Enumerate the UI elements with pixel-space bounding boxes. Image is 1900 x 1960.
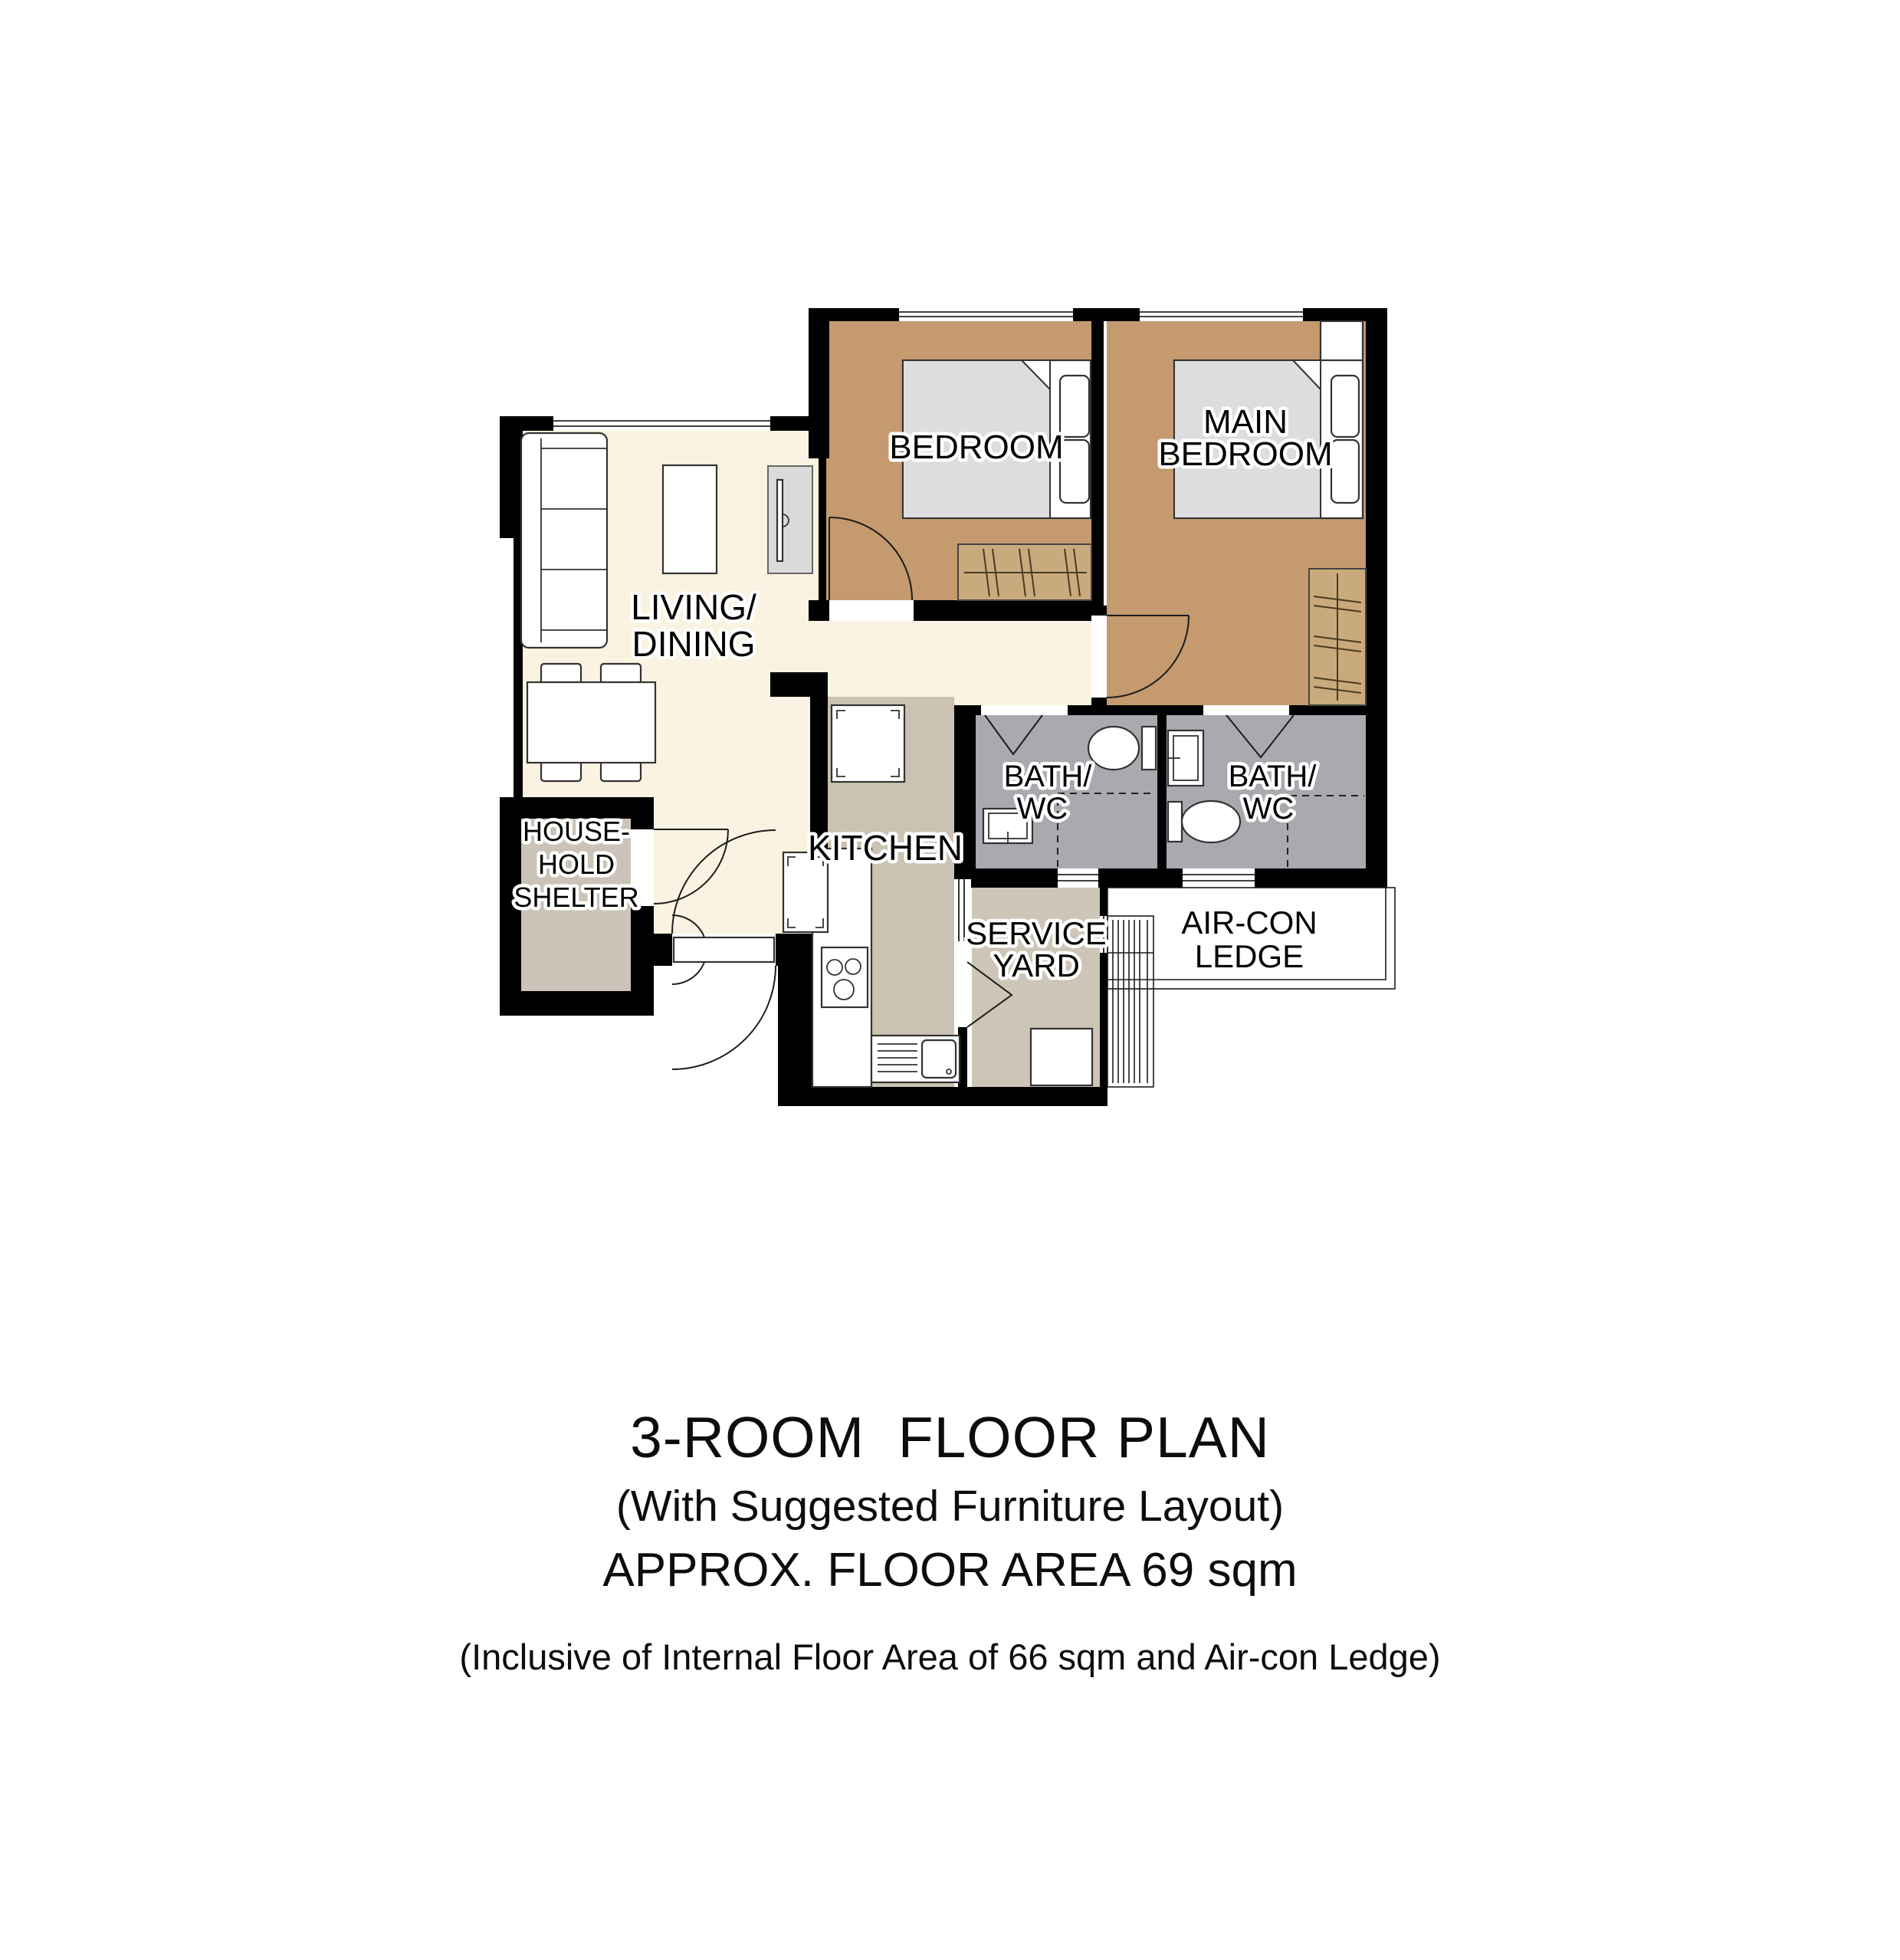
main-bedroom-window: [1140, 308, 1303, 321]
floor-plan-page: LIVING/ DINING BEDROOM MAIN BEDROOM KITC…: [0, 0, 1900, 1960]
bath2-vent-window: [1183, 868, 1255, 888]
washing-machine: [1031, 1029, 1092, 1085]
wash-basin: [1168, 730, 1203, 786]
household-shelter-label: HOLD: [538, 849, 615, 880]
aircon-louvres: [1113, 920, 1140, 1083]
bath2-door-opening: [1203, 705, 1289, 715]
living-window: [553, 416, 770, 431]
main-bedroom-wardrobe: [1309, 569, 1366, 705]
kitchen-label: KITCHEN: [808, 828, 963, 868]
bedroom-window: [899, 308, 1073, 321]
aircon-ledge-label: LEDGE: [1195, 938, 1304, 974]
dining-table: [527, 682, 655, 763]
plan-title: 3-ROOM FLOOR PLAN: [0, 1404, 1900, 1470]
dining-set: [527, 664, 655, 781]
bath1-label: WC: [1017, 792, 1068, 826]
bath2-label: WC: [1243, 792, 1295, 826]
plan-area-note: (Inclusive of Internal Floor Area of 66 …: [0, 1636, 1900, 1678]
toilet: [1168, 801, 1240, 842]
living-dining-label: DINING: [632, 624, 756, 664]
household-shelter-label: SHELTER: [514, 882, 638, 913]
coffee-table: [663, 465, 717, 573]
dining-chair: [601, 664, 641, 684]
dining-chair: [601, 761, 641, 781]
bedside-shelf: [1331, 440, 1359, 503]
bedside-shelf: [1331, 376, 1359, 437]
service-yard-label: SERVICE: [966, 915, 1107, 951]
entrance-door-leaf: [674, 937, 774, 962]
bedroom-door-opening: [829, 600, 914, 621]
bath1-label: BATH/: [1004, 760, 1093, 793]
sofa: [521, 433, 607, 648]
dining-chair: [541, 664, 581, 684]
kitchen-sink: [871, 1036, 960, 1082]
toilet: [1088, 727, 1156, 770]
bedside-shelf: [1060, 376, 1089, 437]
plan-floor-area: APPROX. FLOOR AREA 69 sqm: [0, 1543, 1900, 1597]
household-shelter-label: HOUSE-: [523, 816, 630, 847]
service-yard-label: YARD: [993, 947, 1080, 983]
main-bedroom-door-opening: [1091, 616, 1107, 698]
bath1-door-opening: [981, 705, 1068, 715]
fridge: [832, 705, 904, 782]
bedroom-wardrobe: [958, 544, 1091, 600]
hallway-floor: [809, 621, 1091, 705]
stove: [822, 947, 868, 1007]
bath2-label: BATH/: [1229, 760, 1318, 793]
bedside-shelf: [1060, 440, 1089, 503]
plan-subtitle: (With Suggested Furniture Layout): [0, 1481, 1900, 1532]
aircon-ledge-label: AIR-CON: [1181, 904, 1317, 941]
bedroom-label: BEDROOM: [889, 428, 1063, 466]
dining-chair: [541, 761, 581, 781]
living-dining-label: LIVING/: [631, 587, 756, 627]
bath1-vent-window: [1058, 868, 1098, 888]
main-bedroom-label: BEDROOM: [1158, 435, 1332, 473]
tv-console: [768, 466, 812, 573]
